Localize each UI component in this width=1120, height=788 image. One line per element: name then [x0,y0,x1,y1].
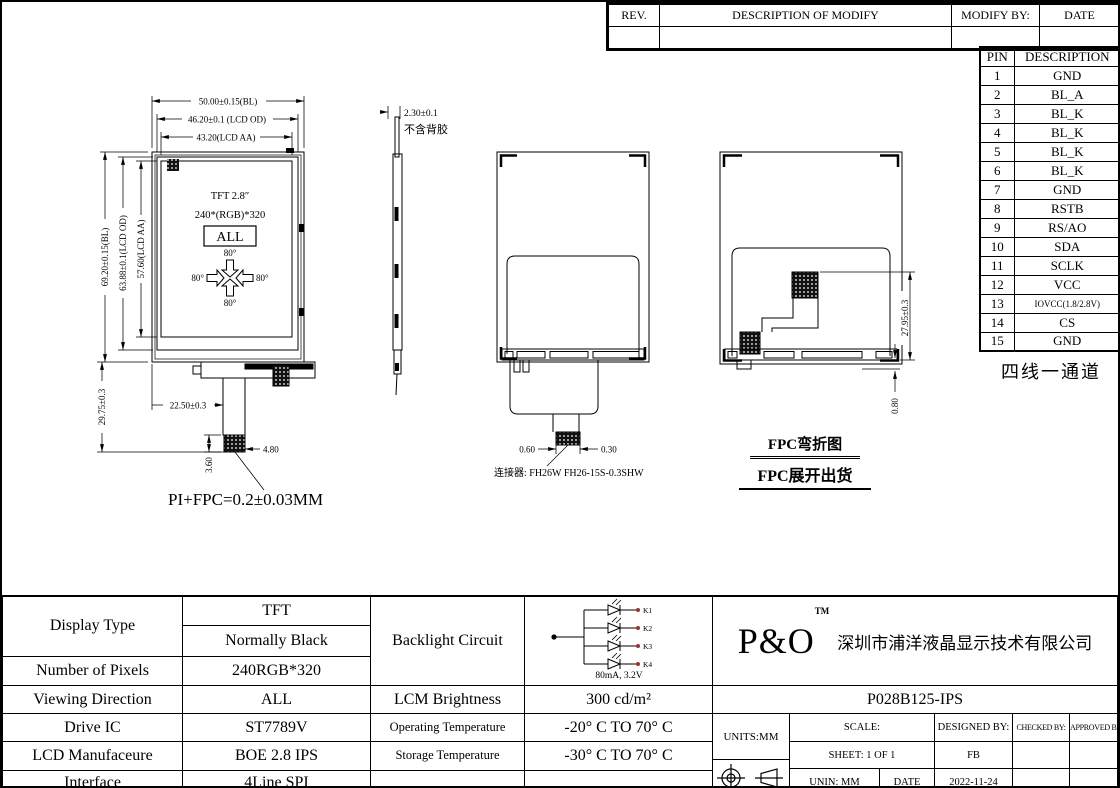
dim-lead-left: 0.60 [519,445,535,455]
display-type-label: Display Type [3,596,183,656]
angle-right-label: 80° [256,273,269,283]
approved-by-value [1070,742,1118,768]
scale-label: SCALE: [790,714,935,741]
date-label: DATE [880,769,935,788]
backlight-circuit-cell: K1 K2 K3 K4 80mA, 3.2V [525,596,713,686]
interface-label: Interface [3,770,183,788]
led-rating: 80mA, 3.2V [595,671,642,680]
back-view-unfolded [497,152,649,466]
part-number: P028B125-IPS [713,686,1118,714]
backlight-circuit-diagram: K1 K2 K3 K4 80mA, 3.2V [526,597,712,680]
manufacturer-value: BOE 2.8 IPS [183,742,371,770]
pin-row: 8RSTB [980,199,1120,218]
date-header: DATE [1040,4,1120,27]
unin-label: UNIN: MM [790,769,880,788]
fpc-folded-title: FPC弯折图 [750,433,860,459]
pin-row: 9RS/AO [980,218,1120,237]
pin-row: 4BL_K [980,123,1120,142]
pin-description-header: DESCRIPTION [1014,47,1120,66]
led-k4-label: K4 [643,660,652,669]
screen-type-label: TFT 2.8″ [211,191,250,202]
pin-row: 11SCLK [980,256,1120,275]
pin-row: 14CS [980,313,1120,332]
dim-connector-height: 3.60 [204,457,214,473]
spec-table: Display Type TFT Backlight Circuit [2,595,1118,788]
brightness-value: 300 cd/m² [525,686,713,714]
display-type-value-1: TFT [183,596,371,625]
company-name: 深圳市浦洋液晶显示技术有限公司 [837,629,1092,654]
dim-fpc-folded-length: 27.95±0.3 [900,299,910,336]
pin-row: 2BL_A [980,85,1120,104]
pin-row: 12VCC [980,275,1120,294]
storage-temp-value: -30° C TO 70° C [525,742,713,770]
title-block-left: UNITS:MM [713,714,790,788]
drive-ic-label: Drive IC [3,714,183,742]
manufacturer-label: LCD Manufaceure [3,742,183,770]
dim-aa-width: 43.20(LCD AA) [197,133,256,143]
approved-by-label: APPROVED BY: [1070,714,1118,741]
modify-by-header: MODIFY BY: [952,4,1040,27]
company-logo-cell: P&OTM 深圳市浦洋液晶显示技术有限公司 [713,596,1118,686]
dim-lead-right: 0.30 [601,445,617,455]
front-view-screen-markings: TFT 2.8″ 240*(RGB)*320 ALL 80° 80° 80° 8… [191,191,269,308]
designed-by-value: FB [935,742,1013,768]
po-logo: P&OTM [738,620,830,662]
checked-date-empty [1013,769,1070,788]
pixels-value: 240RGB*320 [183,656,371,686]
back-view-folded [720,152,915,392]
viewing-direction-label: Viewing Direction [3,686,183,714]
led-k3-label: K3 [643,642,652,651]
rev-header: REV. [608,4,660,27]
pin-row: 13IOVCC(1.8/2.8V) [980,294,1120,313]
viewing-angle-arrows [207,260,253,296]
interface-channel-note: 四线一通道 [982,358,1120,384]
checked-by-value [1013,742,1070,768]
brightness-label: LCM Brightness [371,686,525,714]
pin-row: 15GND [980,332,1120,351]
angle-left-label: 80° [191,273,204,283]
viewing-direction-value: ALL [183,686,371,714]
fpc-unfolded-title: FPC展开出货 [739,462,871,490]
pin-table: PINDESCRIPTION 1GND 2BL_A 3BL_K 4BL_K 5B… [979,46,1120,352]
pin-row: 6BL_K [980,161,1120,180]
pin-header: PIN [980,47,1014,66]
dim-thickness: 2.30±0.1 [404,109,438,119]
empty-spec-cell-2 [525,770,713,788]
revision-table: REV. DESCRIPTION OF MODIFY MODIFY BY: DA… [606,2,1120,51]
front-view-dim-labels: 50.00±0.15(BL) 46.20±0.1 (LCD OD) 43.20(… [94,96,323,510]
description-empty-cell [660,27,952,50]
dim-aa-height: 57.60(LCD AA) [136,220,146,279]
side-view [380,106,402,395]
pin-row: 5BL_K [980,142,1120,161]
rev-empty-cell [608,27,660,50]
pi-fpc-note: PI+FPC=0.2±0.03MM [168,490,323,509]
thickness-note: 不含背胶 [404,122,448,136]
projection-symbol [713,760,789,788]
operating-temp-label: Operating Temperature [371,714,525,742]
dim-bl-width: 50.00±0.15(BL) [199,97,257,107]
screen-resolution-label: 240*(RGB)*320 [195,210,266,221]
connector-note: 连接器: FH26W FH26-15S-0.3SHW [494,466,644,479]
sheet-value: SHEET: 1 OF 1 [790,742,935,768]
datasheet-page: TFT 2.8″ 240*(RGB)*320 ALL 80° 80° 80° 8… [0,0,1120,788]
dim-od-width: 46.20±0.1 (LCD OD) [188,115,266,125]
pixels-label: Number of Pixels [3,656,183,686]
dim-connector-width: 4.80 [263,445,279,455]
led-k2-label: K2 [643,624,652,633]
engineering-drawing: TFT 2.8″ 240*(RGB)*320 ALL 80° 80° 80° 8… [2,2,1118,562]
pin-row: 10SDA [980,237,1120,256]
date-value: 2022-11-24 [935,769,1013,788]
pin-row: 3BL_K [980,104,1120,123]
interface-value: 4Line SPI [183,770,371,788]
empty-spec-cell-1 [371,770,525,788]
approved-date-empty [1070,769,1118,788]
dim-bl-height: 69.20±0.15(BL) [100,228,110,286]
angle-top-label: 80° [224,248,237,258]
designed-by-label: DESIGNED BY: [935,714,1013,741]
units-label: UNITS:MM [713,714,789,760]
dim-bottom-gap: 0.80 [890,398,900,414]
viewing-direction-badge: ALL [216,230,243,245]
checked-by-label: CHECKED BY: [1013,714,1070,741]
title-block-right: SCALE: DESIGNED BY: CHECKED BY: APPROVED… [790,714,1118,788]
display-type-value-2: Normally Black [183,625,371,656]
pin-row: 1GND [980,66,1120,85]
description-of-modify-header: DESCRIPTION OF MODIFY [660,4,952,27]
pin-row: 7GND [980,180,1120,199]
dim-fpc-length: 29.75±0.3 [97,388,107,425]
title-block: UNITS:MM [713,714,1118,788]
dim-od-height: 63.88±0.1(LCD OD) [118,215,128,291]
dim-tail-offset: 22.50±0.3 [170,401,207,411]
storage-temp-label: Storage Temperature [371,742,525,770]
third-angle-projection-icon [713,762,789,788]
backlight-circuit-label: Backlight Circuit [371,596,525,686]
drive-ic-value: ST7789V [183,714,371,742]
operating-temp-value: -20° C TO 70° C [525,714,713,742]
led-k1-label: K1 [643,606,652,615]
angle-bottom-label: 80° [224,298,237,308]
